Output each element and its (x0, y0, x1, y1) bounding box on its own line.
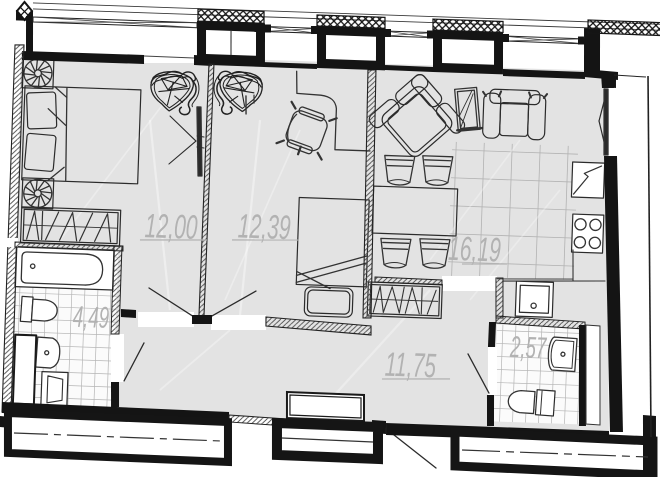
svg-text:2,57: 2,57 (509, 330, 548, 365)
svg-text:16,19: 16,19 (448, 228, 502, 268)
svg-text:4,49: 4,49 (72, 300, 109, 335)
